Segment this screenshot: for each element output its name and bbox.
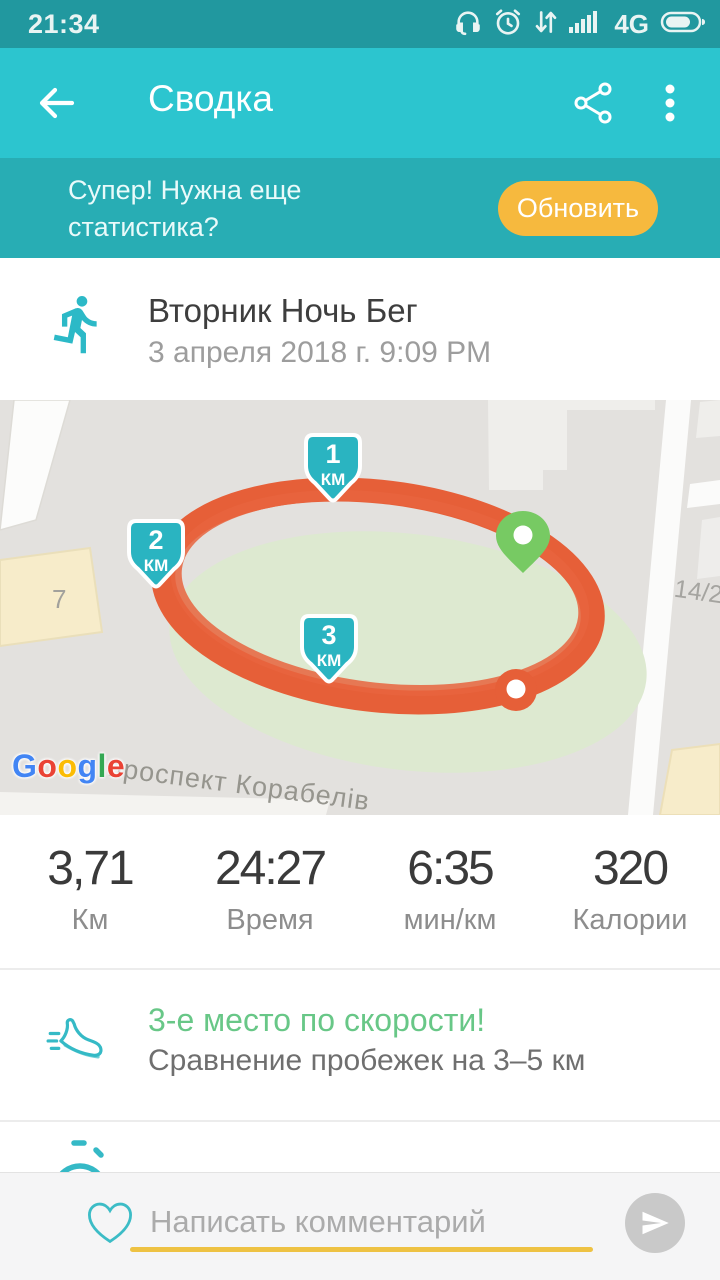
map-building [488, 400, 567, 490]
page-title: Сводка [148, 78, 273, 120]
stat-pace: 6:35 мин/км [360, 841, 540, 968]
comment-underline [130, 1247, 593, 1252]
svg-text:1: 1 [325, 439, 340, 469]
send-icon [640, 1208, 670, 1238]
achievement-subtitle: Сравнение пробежек на 3–5 км [148, 1044, 585, 1078]
overflow-menu-icon [664, 81, 676, 125]
svg-text:КМ: КМ [321, 470, 346, 489]
map-building-beige-left [0, 548, 102, 646]
calories-label: Калории [540, 904, 720, 937]
activity-header: Вторник Ночь Бег 3 апреля 2018 г. 9:09 P… [0, 258, 720, 400]
comment-input[interactable] [148, 1195, 592, 1249]
overflow-menu-button[interactable] [655, 81, 685, 125]
stats-row: 3,71 Км 24:27 Время 6:35 мин/км 320 Кало… [0, 815, 720, 970]
send-button[interactable] [625, 1193, 685, 1253]
promo-banner: Супер! Нужна еще статистика? Обновить [0, 158, 720, 258]
share-button[interactable] [572, 81, 616, 125]
signal-icon [569, 7, 603, 42]
upgrade-button[interactable]: Обновить [498, 181, 658, 236]
pace-label: мин/км [360, 904, 540, 937]
app-bar: Сводка [0, 48, 720, 158]
status-bar: 21:34 [0, 0, 720, 48]
runner-icon [46, 292, 110, 361]
running-shoe-icon [46, 1008, 114, 1081]
stat-distance: 3,71 Км [0, 841, 180, 968]
duration-value: 24:27 [180, 841, 360, 896]
map-road-topleft [0, 400, 70, 530]
pace-value: 6:35 [360, 841, 540, 896]
achievement-title: 3-е место по скорости! [148, 1002, 485, 1039]
distance-value: 3,71 [0, 841, 180, 896]
heart-icon [84, 1197, 136, 1249]
data-arrows-icon [534, 7, 558, 42]
status-time: 21:34 [28, 9, 100, 40]
end-point-dot [507, 680, 526, 699]
google-logo[interactable]: Google [12, 748, 125, 785]
building-label-7: 7 [52, 584, 66, 615]
duration-label: Время [180, 904, 360, 937]
share-icon [572, 81, 616, 125]
promo-message: Супер! Нужна еще статистика? [68, 172, 368, 246]
calories-value: 320 [540, 841, 720, 896]
back-button[interactable] [34, 81, 78, 125]
battery-icon [660, 7, 706, 42]
stat-duration: 24:27 Время [180, 841, 360, 968]
activity-title: Вторник Ночь Бег [148, 292, 418, 330]
back-arrow-icon [34, 81, 78, 125]
achievement-row[interactable]: 3-е место по скорости! Сравнение пробеже… [0, 972, 720, 1122]
distance-label: Км [0, 904, 180, 937]
alarm-icon [493, 7, 523, 42]
network-type-label: 4G [614, 9, 649, 40]
activity-datetime: 3 апреля 2018 г. 9:09 PM [148, 336, 491, 370]
like-button[interactable] [84, 1197, 136, 1249]
stat-calories: 320 Калории [540, 841, 720, 968]
headset-icon [454, 7, 482, 42]
status-icons: 4G [454, 7, 706, 41]
next-row-partial[interactable] [0, 1122, 720, 1172]
svg-text:КМ: КМ [144, 556, 169, 575]
svg-text:2: 2 [148, 525, 163, 555]
map-building-beige-right [660, 744, 720, 815]
svg-text:КМ: КМ [317, 651, 342, 670]
route-map[interactable]: 1 КМ 2 КМ 3 КМ 7 14/2 проспект Корабелів… [0, 400, 720, 815]
comment-bar [0, 1172, 720, 1280]
stopwatch-icon [50, 1138, 110, 1172]
svg-text:3: 3 [321, 620, 336, 650]
